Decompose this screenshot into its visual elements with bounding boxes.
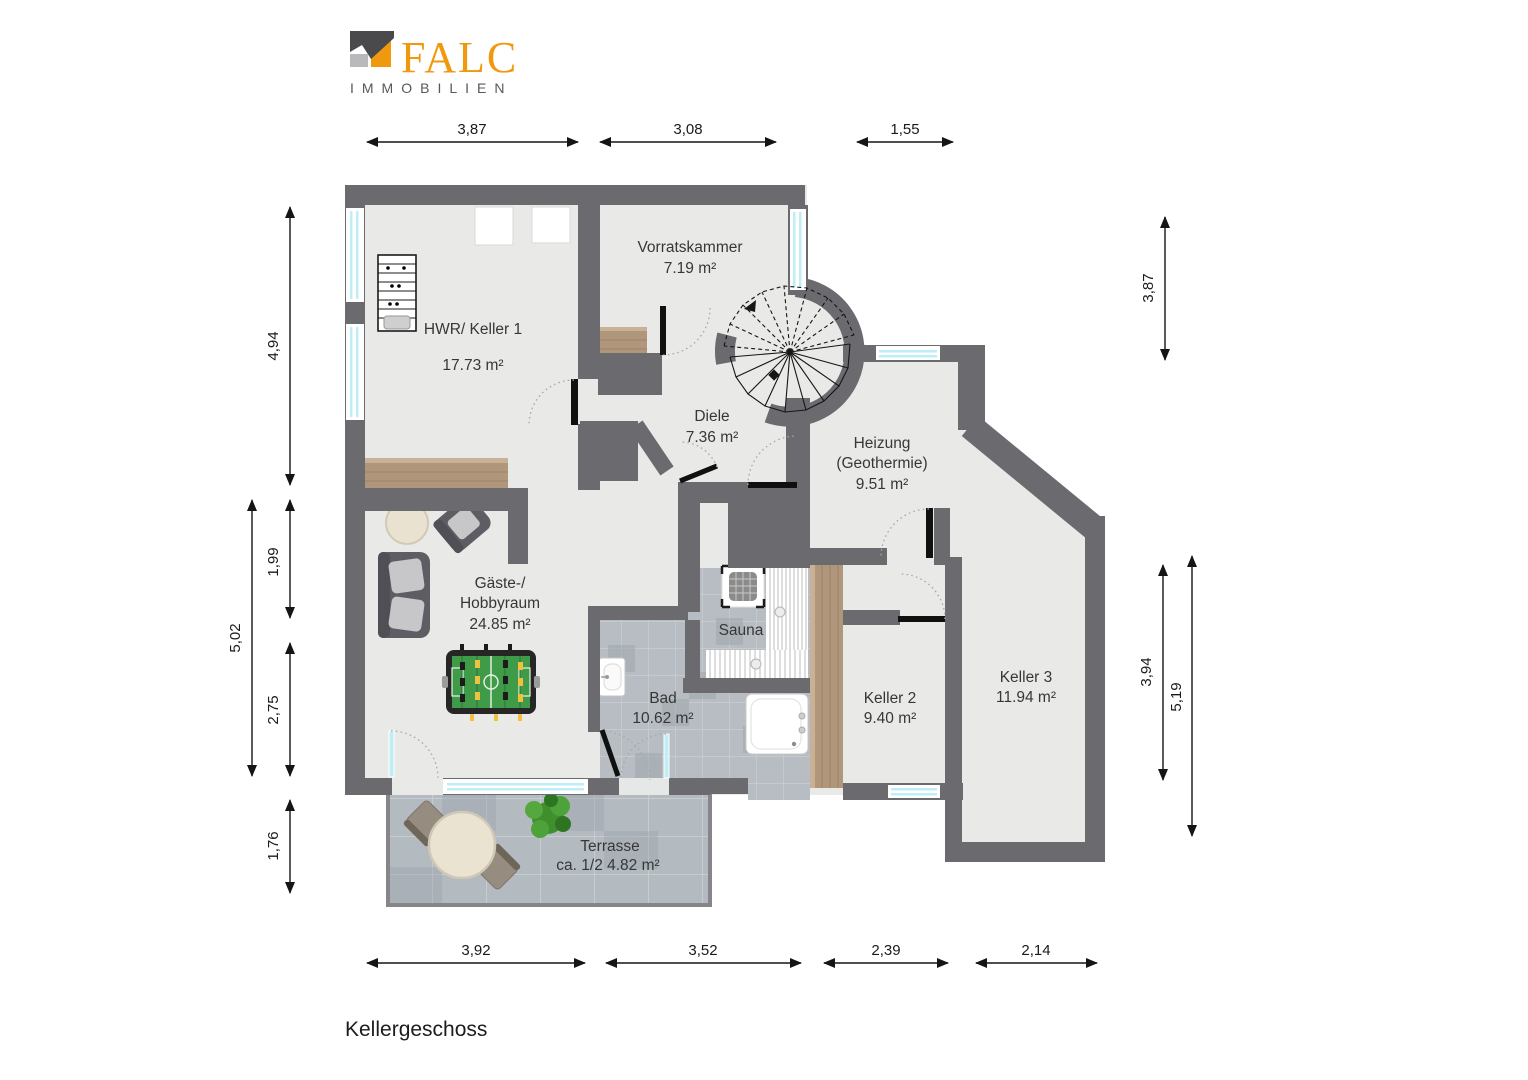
dim-bottom-1: 3,92 <box>461 942 490 959</box>
label-diele: Diele <box>694 408 729 425</box>
dim-right-top: 3,87 <box>1140 273 1157 302</box>
dryer-icon <box>532 207 570 243</box>
page-title: Kellergeschoss <box>345 1018 487 1041</box>
door-vorratskammer <box>660 306 666 355</box>
label-hwr: HWR/ Keller 1 <box>424 321 522 338</box>
dim-top-2: 3,08 <box>673 121 702 138</box>
bad-glass-door-leaf <box>664 734 669 778</box>
window-left-1 <box>346 208 364 302</box>
label-hobbyraum-2: Hobbyraum <box>460 595 540 612</box>
washer-icon <box>475 207 513 245</box>
label-keller2: Keller 2 <box>864 690 917 707</box>
label-terrasse-area: ca. 1/2 4.82 m² <box>556 857 659 874</box>
foosball-table-icon <box>442 644 540 721</box>
dim-right-1: 3,94 <box>1138 657 1155 686</box>
dim-left-2: 1,99 <box>265 547 282 576</box>
door-keller2 <box>898 616 945 622</box>
dim-top-3: 1,55 <box>890 121 919 138</box>
shelving-icon <box>378 255 416 331</box>
door-hwr <box>571 379 578 425</box>
sauna-bench-horizontal <box>706 650 808 678</box>
dim-bottom-4: 2,14 <box>1021 942 1050 959</box>
dim-top-1: 3,87 <box>457 121 486 138</box>
dim-left-1: 4,94 <box>265 331 282 360</box>
label-heizung-2: (Geothermie) <box>836 455 927 472</box>
dim-right-2: 5,19 <box>1168 682 1185 711</box>
label-heizung: Heizung <box>854 435 911 452</box>
terrace-slider-door <box>443 779 588 794</box>
label-sauna: Sauna <box>719 622 764 639</box>
window-left-2 <box>346 324 364 420</box>
label-keller3-area: 11.94 m² <box>996 689 1056 706</box>
floor-plan-canvas: FALC IMMOBILIEN <box>0 0 1528 1080</box>
dim-bottom-3: 2,39 <box>871 942 900 959</box>
dim-left-3: 2,75 <box>265 695 282 724</box>
dim-left-4: 1,76 <box>265 831 282 860</box>
shower-icon <box>722 566 764 607</box>
falc-logo: FALC IMMOBILIEN <box>350 31 518 96</box>
window-vorratskammer <box>790 209 806 290</box>
door-lobby <box>926 508 933 558</box>
logo-mark-gray <box>350 54 368 67</box>
label-keller2-area: 9.40 m² <box>864 710 917 727</box>
bathtub-icon <box>746 694 808 754</box>
sofa-icon <box>378 552 430 638</box>
sink-icon <box>599 658 625 696</box>
floor-plan-page: FALC IMMOBILIEN <box>0 0 1528 1080</box>
label-terrasse: Terrasse <box>580 838 639 855</box>
door-opening-2 <box>619 778 669 795</box>
sauna-bench-vertical <box>766 568 808 652</box>
label-hwr-area: 17.73 m² <box>442 357 503 374</box>
dim-bottom-2: 3,52 <box>688 942 717 959</box>
wood-counter-hwr <box>363 458 508 490</box>
sauna-wood-wall <box>810 558 843 788</box>
terrace-table-icon <box>429 812 495 878</box>
label-keller3: Keller 3 <box>1000 669 1053 686</box>
window-heizung <box>876 346 940 360</box>
label-hobbyraum-area: 24.85 m² <box>469 616 530 633</box>
door-opening <box>392 778 443 795</box>
door-heizung <box>748 482 797 488</box>
dim-left-outer: 5,02 <box>227 623 244 652</box>
logo-subtitle-text: IMMOBILIEN <box>350 80 512 96</box>
rear-walkway-tiles <box>748 780 810 800</box>
label-vorratskammer: Vorratskammer <box>637 239 742 256</box>
label-heizung-area: 9.51 m² <box>856 476 909 493</box>
label-bad: Bad <box>649 690 677 707</box>
label-hobbyraum: Gäste-/ <box>475 575 527 592</box>
logo-brand-text: FALC <box>401 33 518 82</box>
label-diele-area: 7.36 m² <box>686 429 739 446</box>
french-door-leaf <box>389 731 394 777</box>
label-vorratskammer-area: 7.19 m² <box>664 260 717 277</box>
label-bad-area: 10.62 m² <box>632 710 693 727</box>
window-keller2 <box>888 785 940 798</box>
